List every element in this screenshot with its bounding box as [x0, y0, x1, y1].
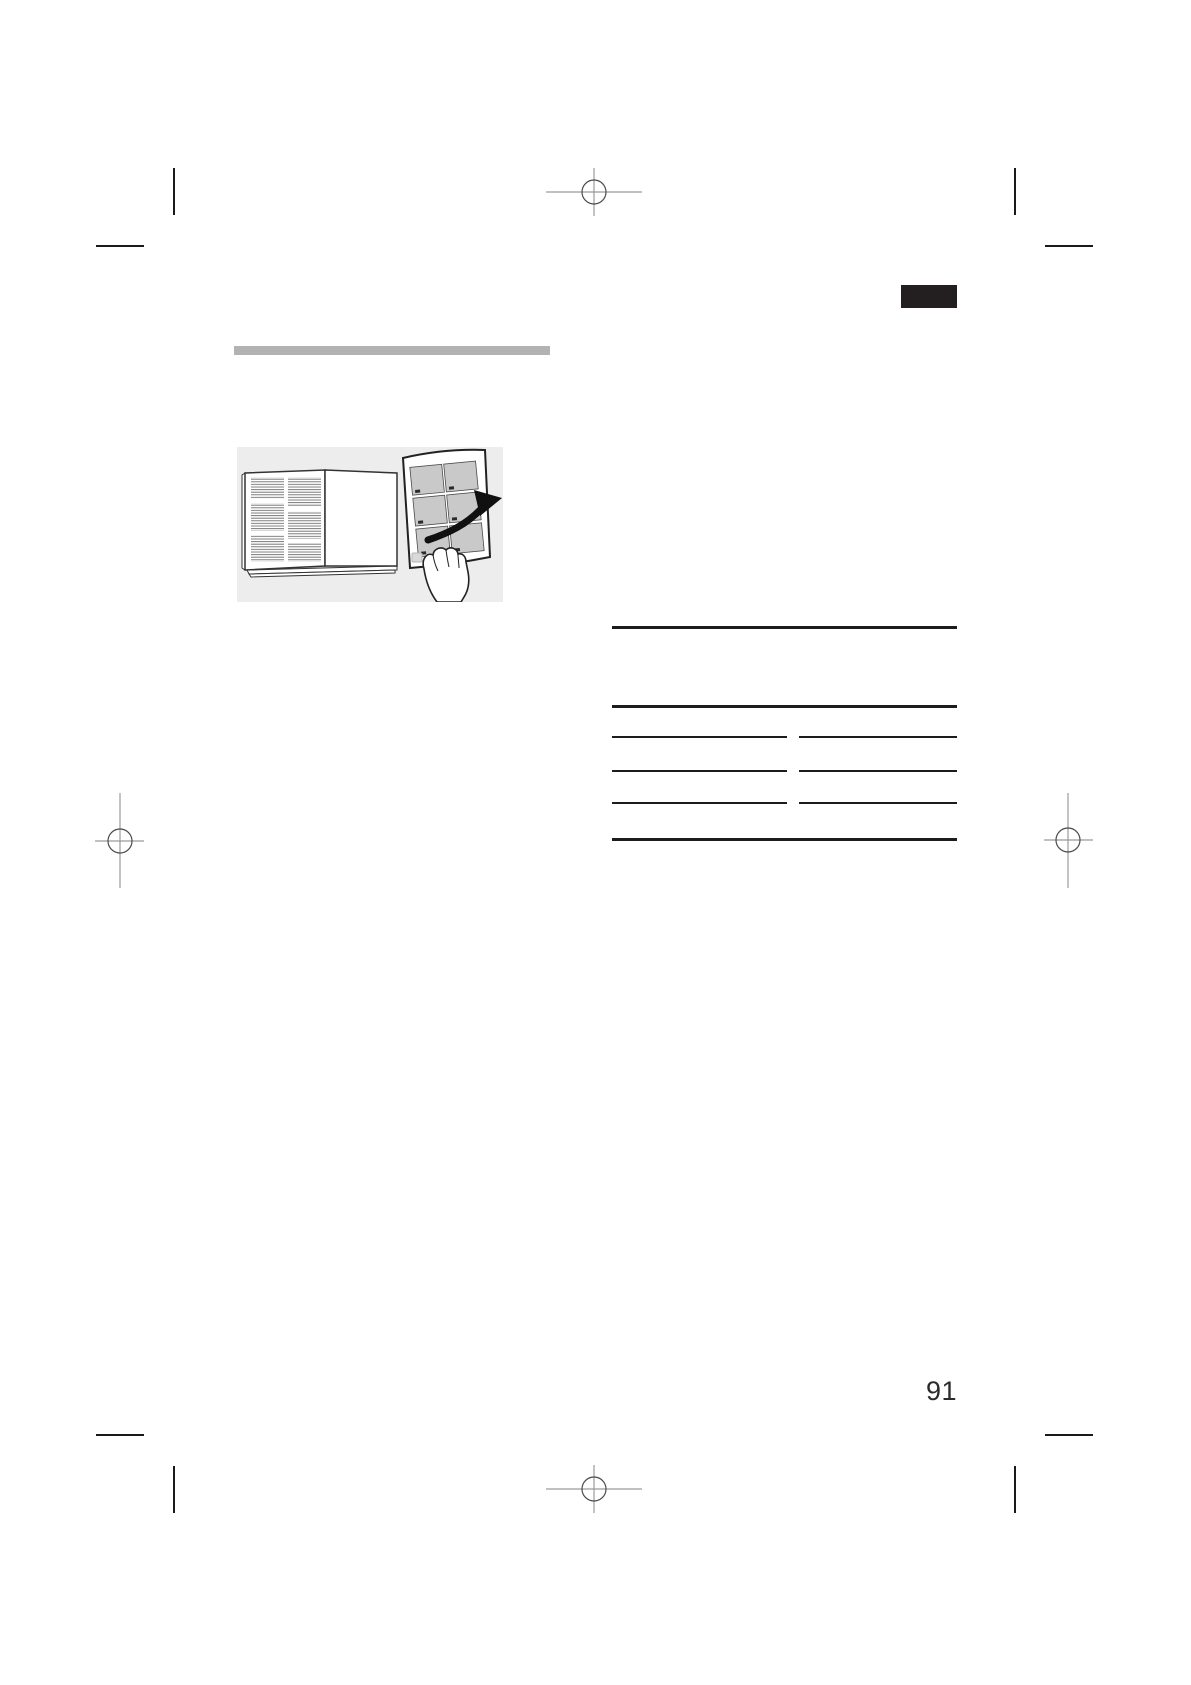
crop-mark-bottom-right-vertical: [1014, 1466, 1016, 1513]
manual-proof-page: 91: [0, 0, 1191, 1685]
section-tab-marker: [901, 285, 957, 308]
table-rule-bottom: [612, 838, 957, 841]
appliance-open-door: [242, 470, 397, 577]
table-rule-row1-left: [612, 736, 787, 738]
vent-slats-left-column: [251, 477, 284, 562]
table-rule-row1-right: [799, 736, 957, 738]
chapter-title-bar: [234, 346, 550, 355]
table-rule-header-bottom: [612, 705, 957, 708]
blank-panel: [325, 470, 397, 566]
table-rule-top: [612, 626, 957, 629]
registration-mark-icon-top: [544, 142, 644, 242]
crop-mark-bottom-left-horizontal: [96, 1434, 144, 1436]
table-rule-row2-left: [612, 770, 787, 772]
crop-mark-top-right-horizontal: [1045, 245, 1093, 247]
table-rule-row3-left: [612, 802, 787, 804]
vent-slats-right-column: [288, 477, 321, 562]
crop-mark-top-left-vertical: [173, 168, 175, 215]
registration-mark-icon-left: [70, 791, 170, 891]
crop-mark-top-right-vertical: [1014, 168, 1016, 215]
crop-mark-top-left-horizontal: [96, 245, 144, 247]
table-rule-row3-right: [799, 802, 957, 804]
crop-mark-bottom-left-vertical: [173, 1466, 175, 1513]
table-rule-row2-right: [799, 770, 957, 772]
filter-removal-illustration: [237, 447, 503, 602]
crop-mark-bottom-right-horizontal: [1045, 1434, 1093, 1436]
registration-mark-icon-right: [1018, 790, 1118, 890]
latch-pad: [412, 553, 422, 562]
registration-mark-icon-bottom: [544, 1439, 644, 1539]
page-number: 91: [857, 1377, 957, 1405]
